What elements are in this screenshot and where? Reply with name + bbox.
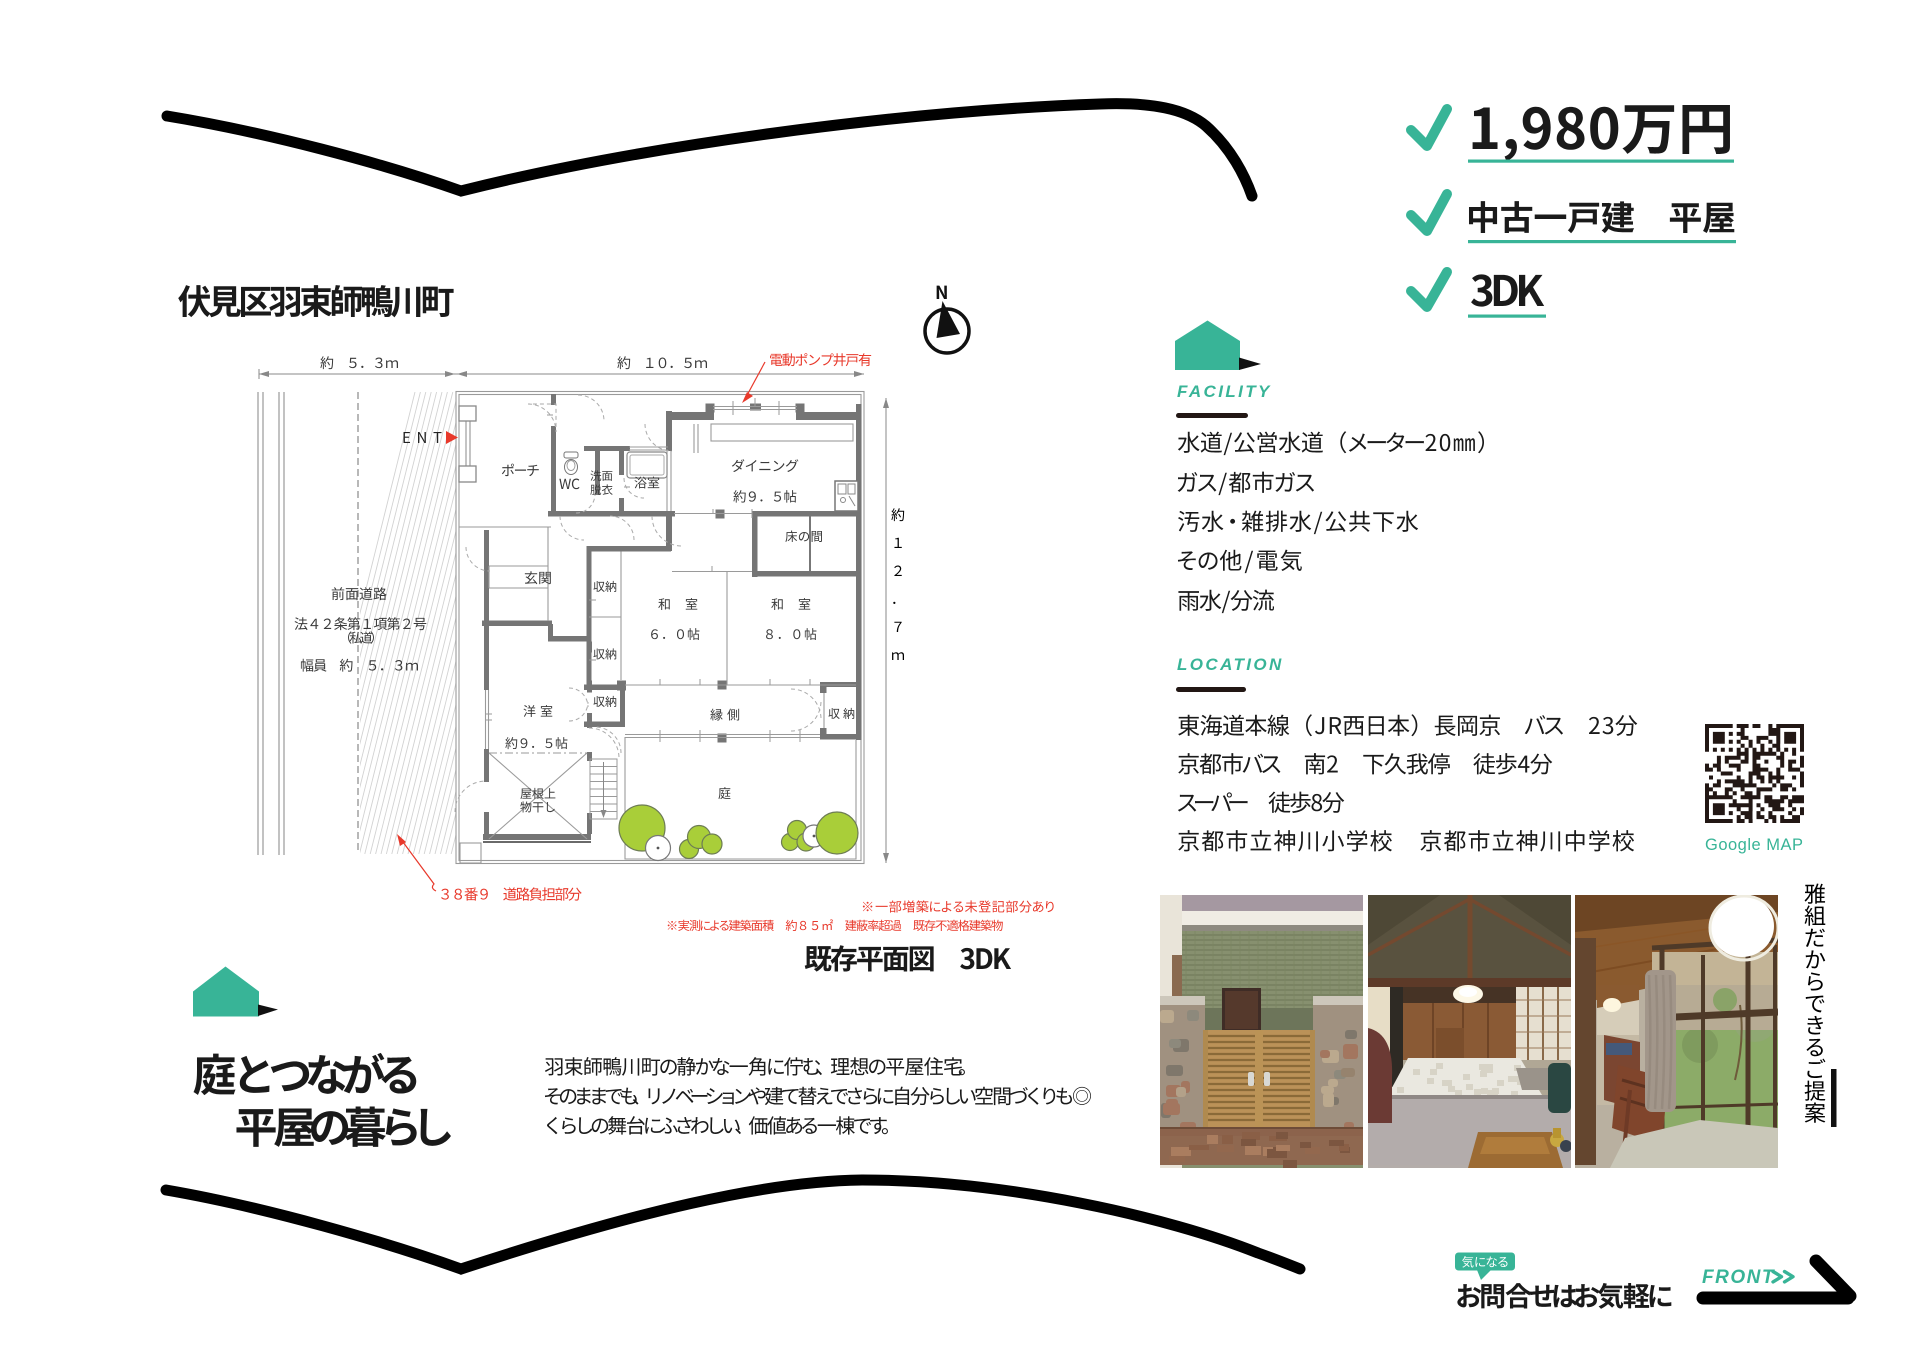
svg-text:LOCATION: LOCATION (1177, 655, 1284, 674)
svg-text:FRONT: FRONT (1702, 1267, 1775, 1288)
svg-text:FACILITY: FACILITY (1177, 382, 1272, 401)
svg-text:Google MAP: Google MAP (1705, 836, 1804, 854)
